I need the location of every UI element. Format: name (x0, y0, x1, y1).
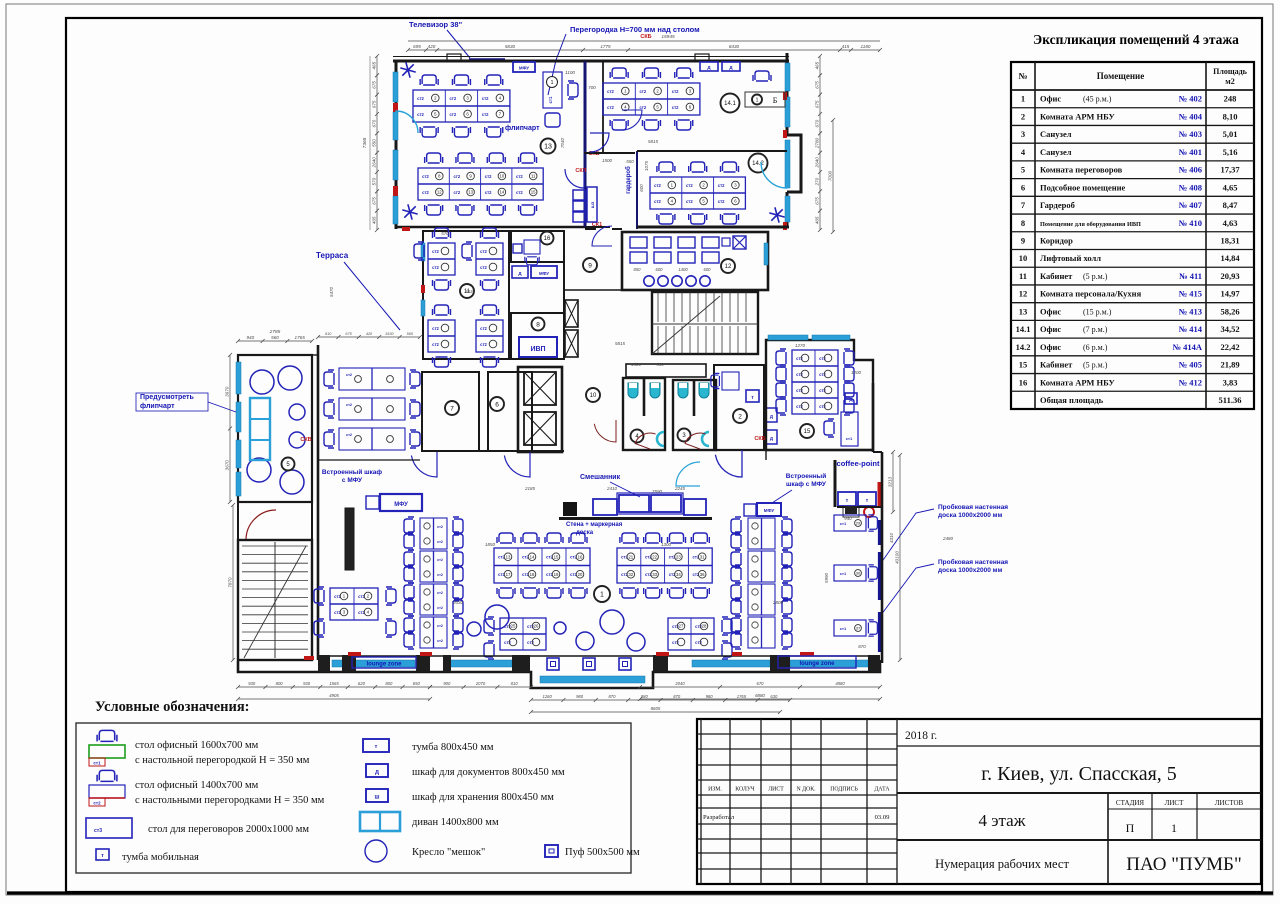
svg-text:58,26: 58,26 (1220, 306, 1239, 316)
svg-text:1565: 1565 (329, 681, 339, 686)
svg-text:1300: 1300 (661, 542, 672, 547)
svg-text:ст1: ст1 (840, 626, 847, 631)
svg-text:lounge zone: lounge zone (367, 662, 403, 668)
svg-text:Санузел: Санузел (1040, 129, 1072, 139)
svg-text:Комната переговоров: Комната переговоров (1040, 165, 1123, 175)
svg-text:16: 16 (1019, 377, 1028, 387)
svg-text:д: д (375, 770, 379, 776)
svg-text:СТАДИЯ: СТАДИЯ (1116, 799, 1144, 807)
svg-text:1850: 1850 (485, 542, 496, 547)
svg-text:ст2: ст2 (437, 573, 443, 577)
svg-text:10: 10 (1019, 253, 1028, 263)
svg-text:ст2: ст2 (437, 540, 443, 544)
svg-text:(45 р.м.): (45 р.м.) (1083, 95, 1112, 104)
svg-text:Комната персонала/Кухня: Комната персонала/Кухня (1040, 289, 1142, 299)
svg-text:11: 11 (531, 174, 536, 179)
svg-text:17,37: 17,37 (1220, 165, 1240, 175)
svg-text:600: 600 (704, 267, 712, 272)
svg-text:2480: 2480 (942, 536, 954, 541)
svg-text:шкаф для документов 800х450 мм: шкаф для документов 800х450 мм (412, 767, 565, 778)
svg-text:стол для переговоров 2000х100: стол для переговоров 2000х1000 мм (148, 824, 309, 835)
svg-text:12: 12 (437, 190, 442, 195)
svg-text:(6 р.м.): (6 р.м.) (1083, 343, 1108, 352)
svg-text:6: 6 (1021, 182, 1025, 192)
svg-text:СК1: СК1 (592, 222, 602, 228)
svg-text:37: 37 (856, 626, 861, 631)
svg-text:34: 34 (676, 572, 681, 577)
svg-text:3: 3 (1021, 129, 1025, 139)
svg-text:ст2: ст2 (607, 105, 614, 110)
svg-text:9: 9 (588, 262, 592, 269)
svg-text:620: 620 (358, 681, 366, 686)
svg-text:ст2: ст2 (504, 640, 511, 645)
svg-text:ПАО "ПУМБ": ПАО "ПУМБ" (1126, 854, 1241, 875)
svg-text:930: 930 (303, 681, 311, 686)
svg-text:670: 670 (372, 119, 377, 127)
svg-text:№ 411: № 411 (1179, 271, 1202, 281)
svg-text:3213: 3213 (888, 476, 893, 487)
svg-text:13: 13 (468, 190, 473, 195)
svg-text:1180: 1180 (861, 44, 871, 49)
svg-text:Офис: Офис (1040, 324, 1061, 334)
svg-text:ст2: ст2 (718, 183, 725, 188)
svg-text:13: 13 (1019, 306, 1028, 316)
svg-text:3636: 3636 (465, 289, 476, 294)
svg-text:ст2: ст2 (437, 606, 443, 610)
svg-text:2: 2 (738, 413, 742, 420)
svg-text:МФУ: МФУ (764, 508, 775, 513)
svg-text:гардероб: гардероб (625, 166, 632, 194)
svg-text:Терраса: Терраса (316, 251, 349, 260)
svg-text:Офис: Офис (1040, 306, 1061, 316)
svg-text:1765: 1765 (295, 335, 306, 340)
svg-text:33: 33 (652, 572, 657, 577)
svg-text:ст2: ст2 (482, 112, 489, 117)
svg-text:Пробковая настенная: Пробковая настенная (938, 503, 1008, 511)
svg-text:т: т (101, 853, 104, 859)
svg-text:930: 930 (248, 681, 256, 686)
svg-text:43100: 43100 (895, 551, 900, 564)
svg-text:Кресло "мешок": Кресло "мешок" (412, 847, 485, 858)
svg-text:18,31: 18,31 (1220, 235, 1239, 245)
svg-text:МФУ: МФУ (519, 66, 529, 71)
svg-text:с настольной перегородкой Н =: с настольной перегородкой Н = 350 мм (135, 755, 310, 766)
svg-text:4310: 4310 (889, 532, 894, 543)
svg-text:18: 18 (530, 572, 535, 577)
svg-text:ПОДПИСЬ: ПОДПИСЬ (830, 787, 858, 793)
svg-text:570: 570 (441, 231, 449, 236)
svg-text:ШЗ: ШЗ (590, 201, 595, 208)
svg-text:Кабинет: Кабинет (1040, 271, 1073, 281)
svg-text:4,63: 4,63 (1223, 218, 1238, 228)
svg-text:ст2: ст2 (437, 558, 443, 562)
svg-text:ст2: ст2 (672, 105, 679, 110)
svg-text:550: 550 (656, 362, 664, 367)
svg-text:1: 1 (756, 97, 759, 103)
svg-text:17: 17 (506, 572, 511, 577)
svg-text:ЛИСТ: ЛИСТ (768, 787, 784, 793)
svg-text:8430: 8430 (729, 44, 740, 49)
svg-text:ст2: ст2 (482, 96, 489, 101)
svg-text:Офис: Офис (1040, 94, 1061, 104)
svg-text:Телевизор 38": Телевизор 38" (409, 20, 463, 29)
svg-text:№ 404: № 404 (1179, 111, 1203, 121)
svg-text:№ 402: № 402 (1179, 94, 1202, 104)
svg-text:5: 5 (1021, 165, 1025, 175)
svg-text:670: 670 (757, 681, 765, 686)
svg-text:Подсобное помещение: Подсобное помещение (1040, 182, 1126, 192)
svg-text:Гардероб: Гардероб (1040, 200, 1075, 210)
svg-text:Экспликация помещений 4 этажа: Экспликация помещений 4 этажа (1033, 32, 1239, 47)
svg-text:810: 810 (511, 681, 519, 686)
svg-text:420: 420 (366, 332, 373, 336)
svg-text:ст2: ст2 (437, 525, 443, 529)
svg-text:29: 29 (856, 521, 861, 526)
svg-text:5470: 5470 (329, 286, 334, 297)
svg-text:3,83: 3,83 (1223, 377, 1238, 387)
svg-text:650: 650 (413, 681, 421, 686)
svg-text:СКБ: СКБ (754, 436, 765, 442)
svg-text:7000: 7000 (828, 170, 833, 181)
svg-text:2245: 2245 (674, 486, 686, 491)
svg-text:№ 405: № 405 (1179, 360, 1202, 370)
svg-text:Смешанник: Смешанник (580, 474, 621, 481)
svg-text:ст2: ст2 (819, 356, 826, 361)
svg-text:7870: 7870 (228, 577, 233, 588)
svg-text:550: 550 (626, 159, 634, 164)
svg-text:14,84: 14,84 (1220, 253, 1240, 263)
svg-text:ЛИСТОВ: ЛИСТОВ (1215, 799, 1244, 807)
svg-text:13: 13 (544, 144, 552, 151)
svg-text:(5 р.м.): (5 р.м.) (1083, 361, 1108, 370)
svg-text:14,97: 14,97 (1220, 289, 1240, 299)
svg-text:с МФУ: с МФУ (342, 477, 363, 484)
svg-text:м2: м2 (1225, 77, 1234, 86)
svg-text:2800: 2800 (772, 600, 784, 605)
svg-text:8,47: 8,47 (1223, 200, 1239, 210)
svg-text:15: 15 (804, 429, 811, 435)
svg-text:ст2: ст2 (480, 326, 487, 331)
svg-text:№ 410: № 410 (1179, 218, 1202, 228)
svg-text:ст2: ст2 (437, 624, 443, 628)
svg-text:9: 9 (1021, 235, 1025, 245)
svg-text:36: 36 (700, 572, 705, 577)
svg-text:2640: 2640 (815, 157, 820, 169)
svg-text:2030: 2030 (452, 600, 464, 605)
svg-text:ст2: ст2 (432, 265, 439, 270)
svg-text:1: 1 (550, 80, 553, 86)
svg-text:14.2: 14.2 (1016, 342, 1031, 352)
svg-text:ст2: ст2 (480, 342, 487, 347)
svg-text:ст2: ст2 (437, 639, 443, 643)
svg-text:2070: 2070 (475, 681, 486, 686)
svg-text:ЛИСТ: ЛИСТ (1165, 799, 1184, 807)
svg-text:(15 р.м.): (15 р.м.) (1083, 307, 1112, 316)
svg-text:Комната АРМ НБУ: Комната АРМ НБУ (1040, 111, 1115, 121)
svg-text:доска 1000х2000 мм: доска 1000х2000 мм (938, 512, 1002, 519)
svg-text:980: 980 (706, 694, 714, 699)
svg-text:2040: 2040 (674, 681, 685, 686)
svg-text:14.2: 14.2 (752, 161, 764, 167)
svg-text:20: 20 (578, 572, 583, 577)
svg-text:1260: 1260 (543, 694, 553, 699)
svg-text:675: 675 (372, 100, 377, 108)
svg-text:7365: 7365 (362, 137, 368, 148)
svg-text:4905: 4905 (329, 693, 339, 698)
svg-text:ст2: ст2 (686, 199, 693, 204)
svg-text:25: 25 (511, 624, 516, 629)
svg-text:270: 270 (815, 177, 820, 186)
svg-text:16: 16 (544, 236, 551, 242)
svg-text:4880: 4880 (835, 681, 845, 686)
svg-text:СКВ: СКВ (300, 437, 311, 443)
svg-text:30: 30 (856, 571, 861, 576)
svg-text:870: 870 (858, 644, 866, 649)
svg-text:Встроенный: Встроенный (786, 472, 826, 480)
svg-text:ст2: ст2 (654, 183, 661, 188)
svg-text:14.1: 14.1 (724, 101, 736, 107)
svg-text:5990: 5990 (824, 572, 829, 583)
svg-text:ст2: ст2 (718, 199, 725, 204)
svg-text:630: 630 (770, 694, 778, 699)
svg-text:ст2: ст2 (422, 190, 429, 195)
svg-text:ст2: ст2 (346, 403, 352, 407)
svg-text:lounge zone: lounge zone (800, 661, 836, 667)
svg-text:900: 900 (443, 681, 451, 686)
svg-text:14: 14 (500, 190, 505, 195)
svg-text:ст2: ст2 (516, 190, 523, 195)
svg-text:32: 32 (628, 572, 633, 577)
svg-text:Б: Б (773, 96, 778, 105)
svg-text:тумба 800х450 мм: тумба 800х450 мм (412, 742, 494, 753)
svg-text:тумба мобильная: тумба мобильная (122, 852, 199, 863)
svg-text:(7 р.м.): (7 р.м.) (1083, 325, 1108, 334)
svg-text:4 этаж: 4 этаж (979, 811, 1026, 830)
svg-text:ст2: ст2 (654, 199, 661, 204)
svg-text:стол офисный 1600х700 мм: стол офисный 1600х700 мм (135, 740, 259, 751)
svg-text:№ 406: № 406 (1179, 165, 1202, 175)
svg-text:800: 800 (385, 681, 393, 686)
svg-text:ст2: ст2 (639, 105, 646, 110)
svg-text:ст2: ст2 (796, 372, 803, 377)
svg-text:ст2: ст2 (796, 356, 803, 361)
svg-text:19: 19 (554, 572, 559, 577)
svg-text:800: 800 (276, 681, 284, 686)
svg-text:ст2: ст2 (432, 342, 439, 347)
svg-text:3670: 3670 (225, 386, 230, 397)
svg-text:ст1: ст1 (93, 761, 101, 766)
svg-text:675: 675 (815, 100, 820, 108)
svg-text:675: 675 (815, 197, 820, 205)
svg-text:ст1: ст1 (846, 436, 853, 441)
svg-text:ДАТА: ДАТА (874, 787, 890, 793)
svg-text:570: 570 (372, 177, 377, 185)
svg-text:№ 414А: № 414А (1172, 342, 1202, 352)
svg-text:ст2: ст2 (485, 190, 492, 195)
svg-text:2640: 2640 (372, 157, 377, 169)
svg-text:ст2: ст2 (672, 640, 679, 645)
svg-text:670: 670 (815, 119, 820, 127)
svg-text:7590: 7590 (652, 489, 663, 494)
svg-text:22,42: 22,42 (1220, 342, 1239, 352)
svg-text:1500: 1500 (602, 158, 613, 163)
svg-text:ст2: ст2 (453, 190, 460, 195)
svg-text:т: т (375, 744, 378, 750)
svg-text:шкаф для хранения 800х450 мм: шкаф для хранения 800х450 мм (412, 792, 554, 803)
svg-text:23: 23 (676, 554, 681, 559)
svg-text:5,16: 5,16 (1223, 147, 1238, 157)
svg-text:980: 980 (641, 694, 649, 699)
svg-text:ст2: ст2 (819, 404, 826, 409)
svg-text:13: 13 (506, 554, 511, 559)
svg-text:03.09: 03.09 (875, 814, 891, 821)
svg-text:5830: 5830 (505, 44, 516, 49)
svg-text:Разработал: Разработал (703, 814, 735, 821)
svg-text:5,01: 5,01 (1223, 129, 1238, 139)
svg-text:600: 600 (639, 184, 644, 192)
svg-text:Кабинет: Кабинет (1040, 360, 1073, 370)
svg-text:610: 610 (325, 332, 332, 336)
svg-text:Перегородка Н=700 мм над столо: Перегородка Н=700 мм над столом (570, 25, 700, 34)
svg-text:16: 16 (578, 554, 583, 559)
svg-text:2780: 2780 (815, 137, 820, 149)
svg-text:560: 560 (271, 335, 279, 340)
svg-text:ст2: ст2 (485, 174, 492, 179)
svg-text:ст2: ст2 (453, 174, 460, 179)
svg-text:МФУ: МФУ (539, 271, 549, 276)
svg-text:№ 408: № 408 (1179, 182, 1202, 192)
svg-text:флипчарт: флипчарт (505, 125, 540, 132)
svg-text:ст2: ст2 (527, 640, 534, 645)
svg-text:2410: 2410 (606, 486, 618, 491)
svg-text:Общая площадь: Общая площадь (1040, 395, 1104, 405)
svg-text:8: 8 (536, 321, 540, 328)
svg-text:КОЛУЧ: КОЛУЧ (735, 787, 755, 793)
svg-text:415: 415 (842, 44, 850, 49)
svg-text:П: П (1126, 821, 1135, 835)
svg-text:Стена + маркерная: Стена + маркерная (566, 522, 623, 528)
svg-text:ст2: ст2 (695, 640, 702, 645)
svg-text:34,52: 34,52 (1220, 324, 1239, 334)
svg-text:Условные обозначения:: Условные обозначения: (95, 699, 250, 715)
svg-text:ст2: ст2 (417, 96, 424, 101)
svg-text:флипчарт: флипчарт (140, 403, 175, 410)
svg-text:Помещение: Помещение (1097, 71, 1144, 81)
svg-text:ст2: ст2 (819, 372, 826, 377)
svg-text:Предусмотреть: Предусмотреть (140, 394, 194, 401)
svg-text:850: 850 (634, 267, 642, 272)
svg-text:940: 940 (246, 335, 254, 340)
svg-text:8,10: 8,10 (1223, 111, 1238, 121)
svg-text:10: 10 (500, 174, 505, 179)
svg-text:ст1: ст1 (840, 571, 847, 576)
svg-text:20,93: 20,93 (1220, 271, 1239, 281)
svg-text:675: 675 (345, 332, 352, 336)
svg-text:27: 27 (679, 624, 684, 629)
svg-text:Помещение для оборудования ИВП: Помещение для оборудования ИВП (1040, 221, 1141, 228)
svg-text:доска 1000х2000 мм: доска 1000х2000 мм (938, 567, 1002, 574)
svg-text:7040: 7040 (560, 137, 565, 148)
svg-text:Нумерация рабочих мест: Нумерация рабочих мест (935, 857, 1069, 871)
svg-text:Площадь: Площадь (1213, 67, 1248, 76)
svg-text:Санузел: Санузел (1040, 147, 1072, 157)
svg-text:1765: 1765 (737, 694, 747, 699)
svg-text:№ 407: № 407 (1179, 200, 1203, 210)
svg-text:ст2: ст2 (346, 373, 352, 377)
svg-text:№ 403: № 403 (1179, 129, 1202, 139)
svg-text:ст2: ст2 (93, 801, 101, 806)
svg-text:695: 695 (413, 44, 421, 49)
svg-text:Комната АРМ НБУ: Комната АРМ НБУ (1040, 377, 1115, 387)
svg-text:Лифтовый холл: Лифтовый холл (1040, 253, 1101, 263)
svg-text:1: 1 (1171, 821, 1177, 835)
svg-text:ст2: ст2 (437, 591, 443, 595)
svg-text:600: 600 (656, 267, 664, 272)
svg-text:870: 870 (608, 694, 616, 699)
svg-text:1: 1 (1021, 94, 1025, 104)
svg-text:26: 26 (534, 624, 539, 629)
svg-text:ст2: ст2 (819, 388, 826, 393)
svg-text:8: 8 (1021, 218, 1025, 228)
svg-text:248: 248 (1224, 94, 1237, 104)
svg-text:1270: 1270 (795, 343, 806, 348)
svg-text:5815: 5815 (615, 341, 626, 346)
svg-text:6880: 6880 (755, 693, 765, 698)
svg-text:511.36: 511.36 (1219, 395, 1242, 405)
svg-text:ст2: ст2 (417, 112, 424, 117)
svg-text:№ 401: № 401 (1179, 147, 1202, 157)
svg-text:№ 415: № 415 (1179, 289, 1202, 299)
svg-text:ст2: ст2 (480, 265, 487, 270)
svg-text:11: 11 (1019, 271, 1027, 281)
svg-text:28: 28 (702, 624, 707, 629)
svg-text:ст2: ст2 (480, 249, 487, 254)
svg-text:15: 15 (531, 190, 536, 195)
svg-text:с настольными перегородками Н: с настольными перегородками Н = 350 мм (135, 795, 325, 806)
svg-text:стол офисный 1400х700 мм: стол офисный 1400х700 мм (135, 780, 259, 791)
svg-text:465: 465 (372, 216, 377, 224)
svg-text:7: 7 (450, 405, 454, 412)
svg-text:550: 550 (372, 139, 377, 147)
svg-text:Офис: Офис (1040, 342, 1061, 352)
svg-text:14: 14 (530, 554, 535, 559)
svg-text:2185: 2185 (524, 486, 536, 491)
svg-text:8605: 8605 (651, 706, 661, 711)
svg-text:ст2: ст2 (449, 112, 456, 117)
svg-text:ст2: ст2 (796, 388, 803, 393)
svg-text:(5 р.м.): (5 р.м.) (1083, 272, 1108, 281)
svg-text:ст2: ст2 (346, 433, 352, 437)
svg-text:700: 700 (588, 85, 596, 90)
svg-text:ИЗМ.: ИЗМ. (708, 787, 722, 793)
svg-text:ст2: ст2 (422, 174, 429, 179)
svg-text:1530: 1530 (385, 332, 394, 336)
svg-text:15: 15 (1019, 360, 1028, 370)
svg-text:Встроенный шкаф: Встроенный шкаф (322, 468, 383, 476)
svg-text:980: 980 (576, 694, 584, 699)
svg-text:шкаф с МФУ: шкаф с МФУ (786, 481, 827, 488)
svg-text:Коридор: Коридор (1040, 235, 1073, 245)
svg-text:N ДОК.: N ДОК. (796, 787, 816, 793)
svg-text:465: 465 (372, 61, 377, 69)
svg-text:4,65: 4,65 (1223, 182, 1238, 192)
svg-text:1100: 1100 (565, 70, 575, 75)
svg-text:coffee-point: coffee-point (837, 459, 880, 468)
svg-text:№ 414: № 414 (1179, 324, 1203, 334)
svg-text:10: 10 (590, 393, 597, 399)
svg-text:1200: 1200 (851, 370, 862, 375)
svg-text:1400: 1400 (678, 267, 688, 272)
